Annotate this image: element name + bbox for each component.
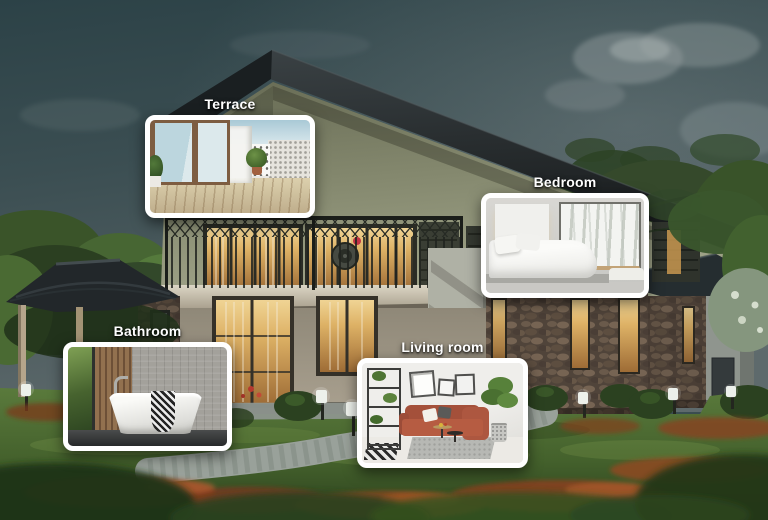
bedroom-pillow [515, 233, 540, 252]
balcony-railing [165, 216, 463, 290]
table-item [439, 423, 443, 427]
bathroom-garden-window [68, 347, 95, 430]
bathroom-faucet [114, 376, 128, 395]
living-room-rug [407, 437, 496, 459]
coffee-table-leg [454, 434, 456, 442]
coffee-table-leg [441, 428, 443, 438]
bathroom-photo-card[interactable] [63, 342, 232, 451]
bedroom-photo-card[interactable] [481, 193, 649, 298]
picture-frame [455, 374, 476, 396]
terrace-label: Terrace [145, 96, 315, 112]
bedroom-label: Bedroom [481, 174, 649, 190]
terrace-planter [150, 176, 161, 187]
living-room-plant-pot [491, 423, 507, 442]
sofa-pillow [437, 406, 451, 419]
terrace-pot [252, 167, 262, 175]
shelf-plant [370, 415, 383, 424]
living-room-shelf [367, 368, 401, 450]
shelf-plant [372, 371, 386, 381]
terrace-door-frame [192, 120, 198, 185]
terrace-sliding-door [150, 120, 230, 185]
living-room-label: Living room [357, 339, 528, 355]
bathroom-towel [151, 391, 175, 433]
coffee-table [447, 431, 463, 435]
house-scene: Terrace Bedroom Bathroom Living room [0, 0, 768, 520]
living-room-photo-card[interactable] [357, 358, 528, 468]
picture-frame [437, 378, 455, 396]
terrace-potted-tree [246, 148, 267, 168]
picture-frame [409, 370, 436, 398]
bedroom-floor [486, 282, 644, 293]
terrace-photo-card[interactable] [145, 115, 315, 218]
bathroom-label: Bathroom [63, 323, 232, 339]
bedroom-window-seat [609, 268, 644, 279]
